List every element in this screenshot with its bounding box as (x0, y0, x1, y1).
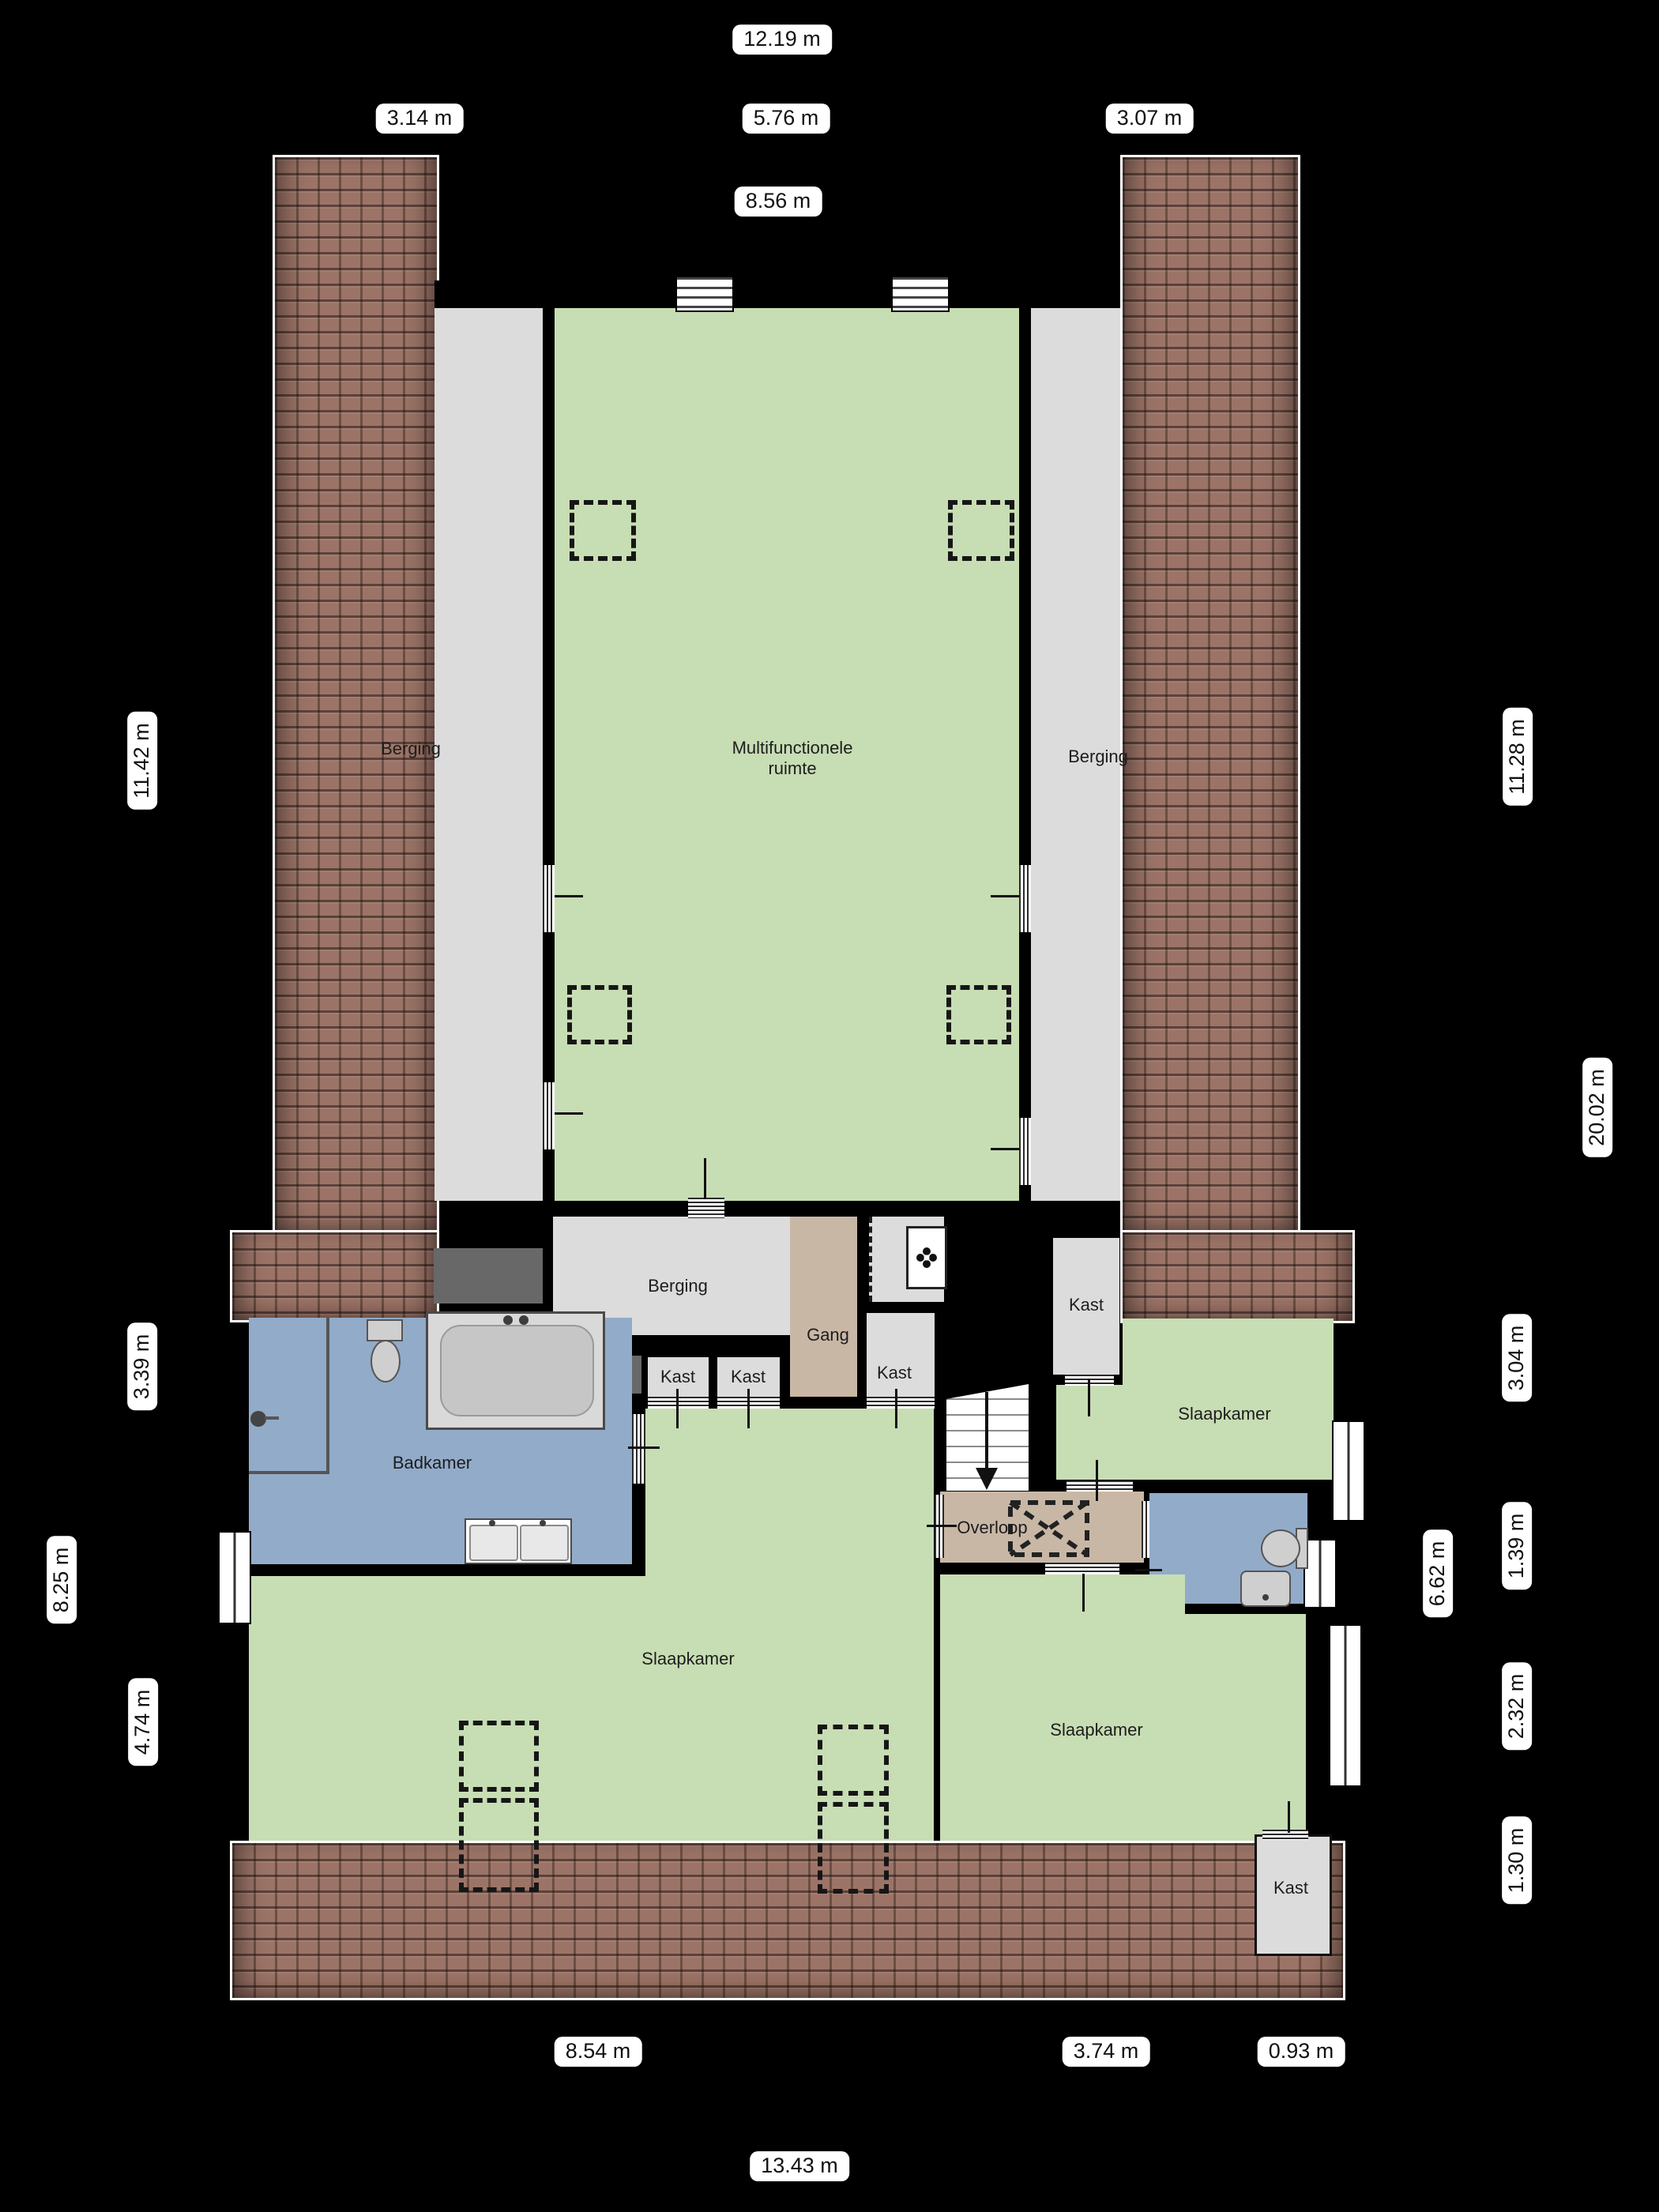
flat-roof-dormer (434, 1248, 543, 1303)
sink-basin (520, 1525, 569, 1561)
roof-vent-left-icon (675, 276, 734, 312)
bathtub-tap (519, 1315, 529, 1325)
toilet-icon (367, 1319, 403, 1341)
door-opening (1262, 1830, 1308, 1840)
top-wall (434, 280, 1120, 308)
room-label-badkamer: Badkamer (393, 1453, 472, 1473)
toilet-bowl (1261, 1529, 1300, 1567)
dormer-outline (459, 1721, 539, 1792)
room-label-kast-e: Kast (1273, 1878, 1308, 1898)
roof-left-band (230, 1230, 439, 1322)
door-tick (747, 1389, 750, 1428)
room-label-kast-b: Kast (731, 1367, 766, 1387)
sink-faucet (1262, 1594, 1269, 1601)
room-slaapkamer-bottomright-strip (940, 1574, 1185, 1614)
stairs-down-arrow-icon (985, 1392, 988, 1471)
dimension-label-right-overall: 20.02 m (1582, 1058, 1612, 1157)
door-opening (1142, 1501, 1149, 1558)
room-label-berging-right: Berging (1068, 747, 1128, 767)
door-tick (704, 1158, 706, 1199)
floor-plan: Berging Multifunctionele ruimte Berging … (0, 0, 1659, 2212)
room-label-slaapkamer-topright: Slaapkamer (1178, 1404, 1270, 1424)
room-label-kast-d: Kast (1069, 1295, 1104, 1315)
room-berging-left (434, 308, 543, 1201)
room-label-multifunctionele-line2: ruimte (768, 758, 816, 778)
roof-vent-right-icon (891, 276, 950, 312)
room-label-slaapkamer-left: Slaapkamer (641, 1649, 734, 1669)
skylight-outline (567, 985, 632, 1044)
room-label-overloop: Overloop (957, 1518, 1027, 1538)
door-tick (676, 1389, 679, 1428)
toilet-bowl (371, 1340, 401, 1382)
door-opening (1045, 1563, 1119, 1574)
dimension-label-right-130: 1.30 m (1502, 1817, 1532, 1905)
door-tick (555, 895, 583, 897)
door-opening (543, 1082, 555, 1149)
sink-basin (469, 1525, 518, 1561)
dimension-label-right-upper: 11.28 m (1503, 708, 1533, 806)
door-tick (991, 1148, 1019, 1150)
skylight-outline (948, 500, 1014, 561)
bathtub-tap (503, 1315, 513, 1325)
door-tick (555, 1112, 583, 1115)
skylight-outline (946, 985, 1011, 1044)
dimension-label-right-662: 6.62 m (1423, 1530, 1453, 1618)
shower-enclosure-line (249, 1471, 328, 1474)
dimension-label-bottom-left: 8.54 m (555, 2037, 642, 2067)
door-opening (1066, 1480, 1133, 1492)
window (218, 1531, 251, 1624)
room-label-slaapkamer-bottomright: Slaapkamer (1050, 1720, 1142, 1740)
dimension-label-right-304: 3.04 m (1502, 1315, 1532, 1402)
dormer-outline (459, 1798, 539, 1892)
roof-left-strip (273, 155, 439, 1235)
room-label-multifunctionele-line1: Multifunctionele (732, 738, 853, 758)
shower-head-icon (250, 1411, 266, 1427)
dimension-label-left-upper: 11.42 m (127, 712, 157, 810)
double-sink-icon (465, 1518, 572, 1564)
sink-faucet (489, 1520, 495, 1526)
niche-dashed-divider (869, 1217, 872, 1302)
bathtub-basin (440, 1325, 594, 1416)
door-tick (991, 895, 1019, 897)
roof-right-strip (1120, 155, 1300, 1235)
dimension-label-left-lower: 4.74 m (128, 1679, 158, 1766)
window (1332, 1420, 1365, 1522)
dormer-outline (818, 1802, 889, 1894)
dimension-label-top-inner: 8.56 m (735, 186, 822, 216)
door-tick (1096, 1460, 1098, 1501)
roof-right-band (1120, 1230, 1355, 1323)
door-tick (1088, 1379, 1090, 1416)
bathtub-icon (426, 1311, 605, 1430)
door-opening (543, 865, 555, 932)
door-tick (1082, 1574, 1085, 1612)
skylight-outline (570, 500, 636, 561)
stairs-down-arrowhead-icon (976, 1468, 998, 1490)
dimension-label-right-139: 1.39 m (1502, 1503, 1532, 1590)
room-label-multifunctionele-ruimte: Multifunctionele ruimte (732, 738, 853, 779)
door-tick (628, 1446, 660, 1449)
roof-bottom-band (230, 1841, 1345, 2000)
room-gang (790, 1217, 857, 1397)
dimension-label-left-mid: 3.39 m (127, 1323, 157, 1411)
dimension-label-bottom-overall: 13.43 m (750, 2151, 849, 2181)
closet-sill (867, 1397, 935, 1409)
door-opening (632, 1414, 645, 1484)
door-tick (1288, 1801, 1290, 1833)
shower-enclosure-line (326, 1318, 329, 1474)
room-slaapkamer-topright-ext (1056, 1385, 1126, 1480)
door-tick (927, 1525, 957, 1527)
room-label-gang: Gang (807, 1325, 849, 1345)
dormer-outline (818, 1725, 889, 1796)
dimension-label-top-overall: 12.19 m (732, 24, 832, 55)
door-opening (688, 1198, 724, 1218)
room-label-kast-c: Kast (877, 1363, 912, 1383)
room-label-kast-a: Kast (660, 1367, 695, 1387)
dimension-label-top-left: 3.14 m (376, 103, 464, 134)
sink-icon (1240, 1571, 1291, 1607)
room-label-berging-mid: Berging (648, 1276, 708, 1296)
window (1303, 1539, 1337, 1608)
window (1329, 1624, 1362, 1787)
shower-head-arm (265, 1416, 279, 1420)
dimension-label-bottom-right: 0.93 m (1258, 2037, 1345, 2067)
dimension-label-bottom-mid: 3.74 m (1063, 2037, 1150, 2067)
dimension-label-left-outer: 8.25 m (47, 1537, 77, 1624)
door-opening (1019, 865, 1031, 932)
dimension-label-top-center: 5.76 m (743, 103, 830, 134)
dimension-label-top-right: 3.07 m (1106, 103, 1194, 134)
sink-faucet (540, 1520, 546, 1526)
room-slaapkamer-left (249, 1576, 934, 1841)
room-slaapkamer-left-upper (645, 1409, 934, 1576)
room-kast-c (867, 1313, 935, 1397)
room-slaapkamer-topright (1123, 1319, 1334, 1480)
dimension-label-right-232: 2.32 m (1502, 1663, 1532, 1751)
washing-machine-icon (906, 1226, 947, 1289)
door-tick (1135, 1569, 1162, 1571)
door-tick (895, 1389, 897, 1428)
room-label-berging-left: Berging (381, 739, 441, 759)
door-opening (1019, 1118, 1031, 1185)
